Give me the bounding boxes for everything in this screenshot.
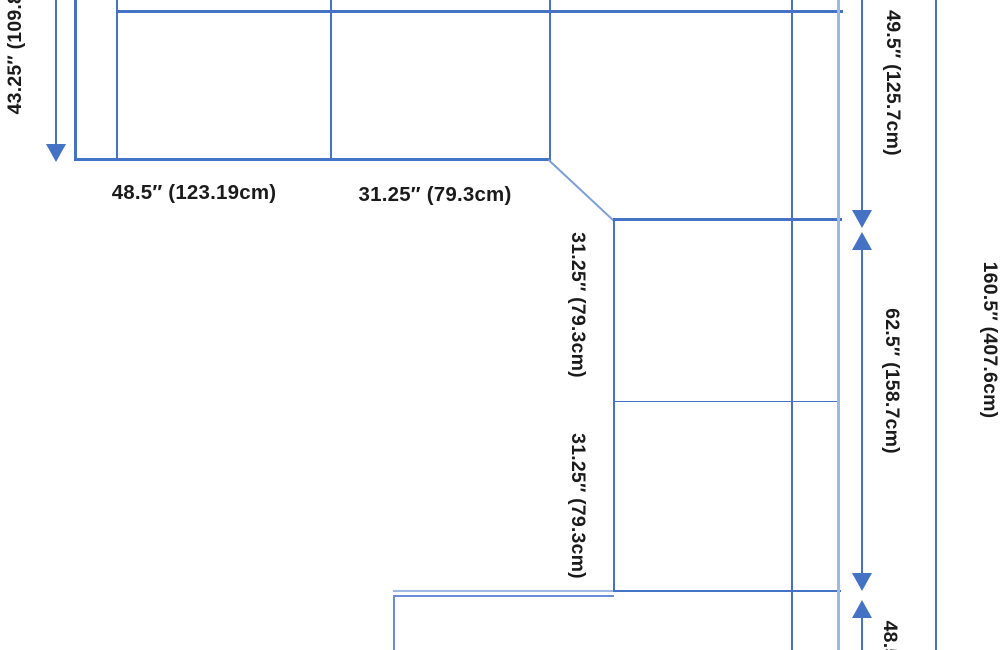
seat-divider-line-1 — [330, 0, 332, 160]
chaise-bottom-edge-line — [613, 590, 841, 593]
right-dimension-arrow-down-icon-2 — [852, 573, 872, 591]
dimension-label-top-seat-width: 48.5″ (123.19cm) — [84, 181, 304, 205]
sofa-back-outer-edge-line — [837, 0, 840, 650]
dimension-label-chaise-upper: 31.25″ (79.3cm) — [567, 195, 589, 415]
chaise-top-edge-line — [613, 218, 842, 221]
left-arm-inner-edge-line — [116, 0, 119, 160]
seat-divider-line-2 — [549, 0, 551, 160]
right-dimension-line-middle-segment — [861, 250, 863, 573]
dimension-label-right-middle-height: 62.5″ (158.7cm) — [881, 271, 903, 491]
right-dimension-arrow-down-icon-1 — [852, 210, 872, 228]
top-inner-edge-line — [116, 10, 843, 14]
left-dimension-arrow-down-icon — [46, 144, 66, 162]
chaise-left-edge-line — [613, 220, 615, 591]
overall-dimension-extension-line — [935, 0, 937, 650]
chaise-divider-line — [614, 401, 838, 402]
dimension-label-chaise-lower: 31.25″ (79.3cm) — [567, 396, 589, 616]
sofa-dimension-diagram: 43.25″ (109.8cm) 48.5″ (123.19cm) 31.25″… — [0, 0, 1000, 650]
bottom-piece-left-edge-line — [393, 596, 395, 650]
upper-section-bottom-edge-line — [74, 158, 551, 161]
dimension-label-left-side-height: 43.25″ (109.8cm) — [4, 0, 26, 146]
sofa-back-line — [791, 0, 794, 650]
right-dimension-line-top-segment — [861, 0, 863, 211]
dimension-label-right-bottom-height: 48.5″ (123.19cm) — [879, 589, 901, 650]
left-dimension-line — [55, 0, 57, 144]
dimension-label-right-top-height: 49.5″ (125.7cm) — [882, 0, 904, 193]
right-dimension-line-bottom-segment — [861, 618, 863, 650]
right-dimension-arrow-up-icon-1 — [852, 232, 872, 250]
dimension-label-overall-height: 160.5″ (407.6cm) — [979, 230, 1000, 450]
right-dimension-arrow-up-icon-2 — [852, 600, 872, 618]
dimension-label-top-corner-width: 31.25″ (79.3cm) — [325, 183, 545, 207]
left-arm-outer-edge-line — [74, 0, 77, 160]
